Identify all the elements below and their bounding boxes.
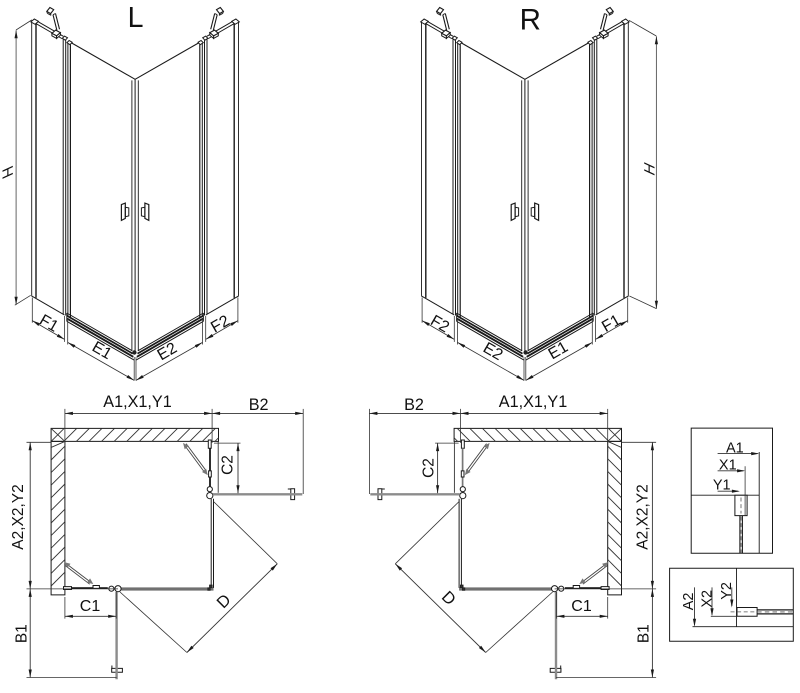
svg-text:B2: B2 — [249, 396, 269, 414]
svg-text:B2: B2 — [404, 396, 424, 414]
svg-text:B1: B1 — [636, 624, 653, 643]
svg-text:A2,X2,Y2: A2,X2,Y2 — [10, 484, 27, 550]
svg-text:X2: X2 — [700, 590, 716, 608]
svg-text:L: L — [128, 2, 144, 34]
svg-text:C2: C2 — [420, 458, 437, 478]
svg-text:A1,X1,Y1: A1,X1,Y1 — [499, 393, 567, 411]
svg-text:B1: B1 — [14, 624, 31, 643]
svg-text:R: R — [520, 3, 541, 36]
svg-text:C1: C1 — [571, 598, 592, 615]
svg-text:C1: C1 — [80, 598, 101, 615]
svg-text:A1,X1,Y1: A1,X1,Y1 — [103, 393, 171, 411]
svg-text:Y1: Y1 — [713, 477, 731, 493]
svg-text:A2: A2 — [681, 593, 697, 611]
svg-text:A1: A1 — [726, 440, 744, 456]
svg-text:A2,X2,Y2: A2,X2,Y2 — [635, 484, 652, 550]
svg-text:C2: C2 — [220, 455, 237, 475]
svg-text:X1: X1 — [719, 458, 737, 474]
svg-text:Y2: Y2 — [719, 582, 735, 600]
